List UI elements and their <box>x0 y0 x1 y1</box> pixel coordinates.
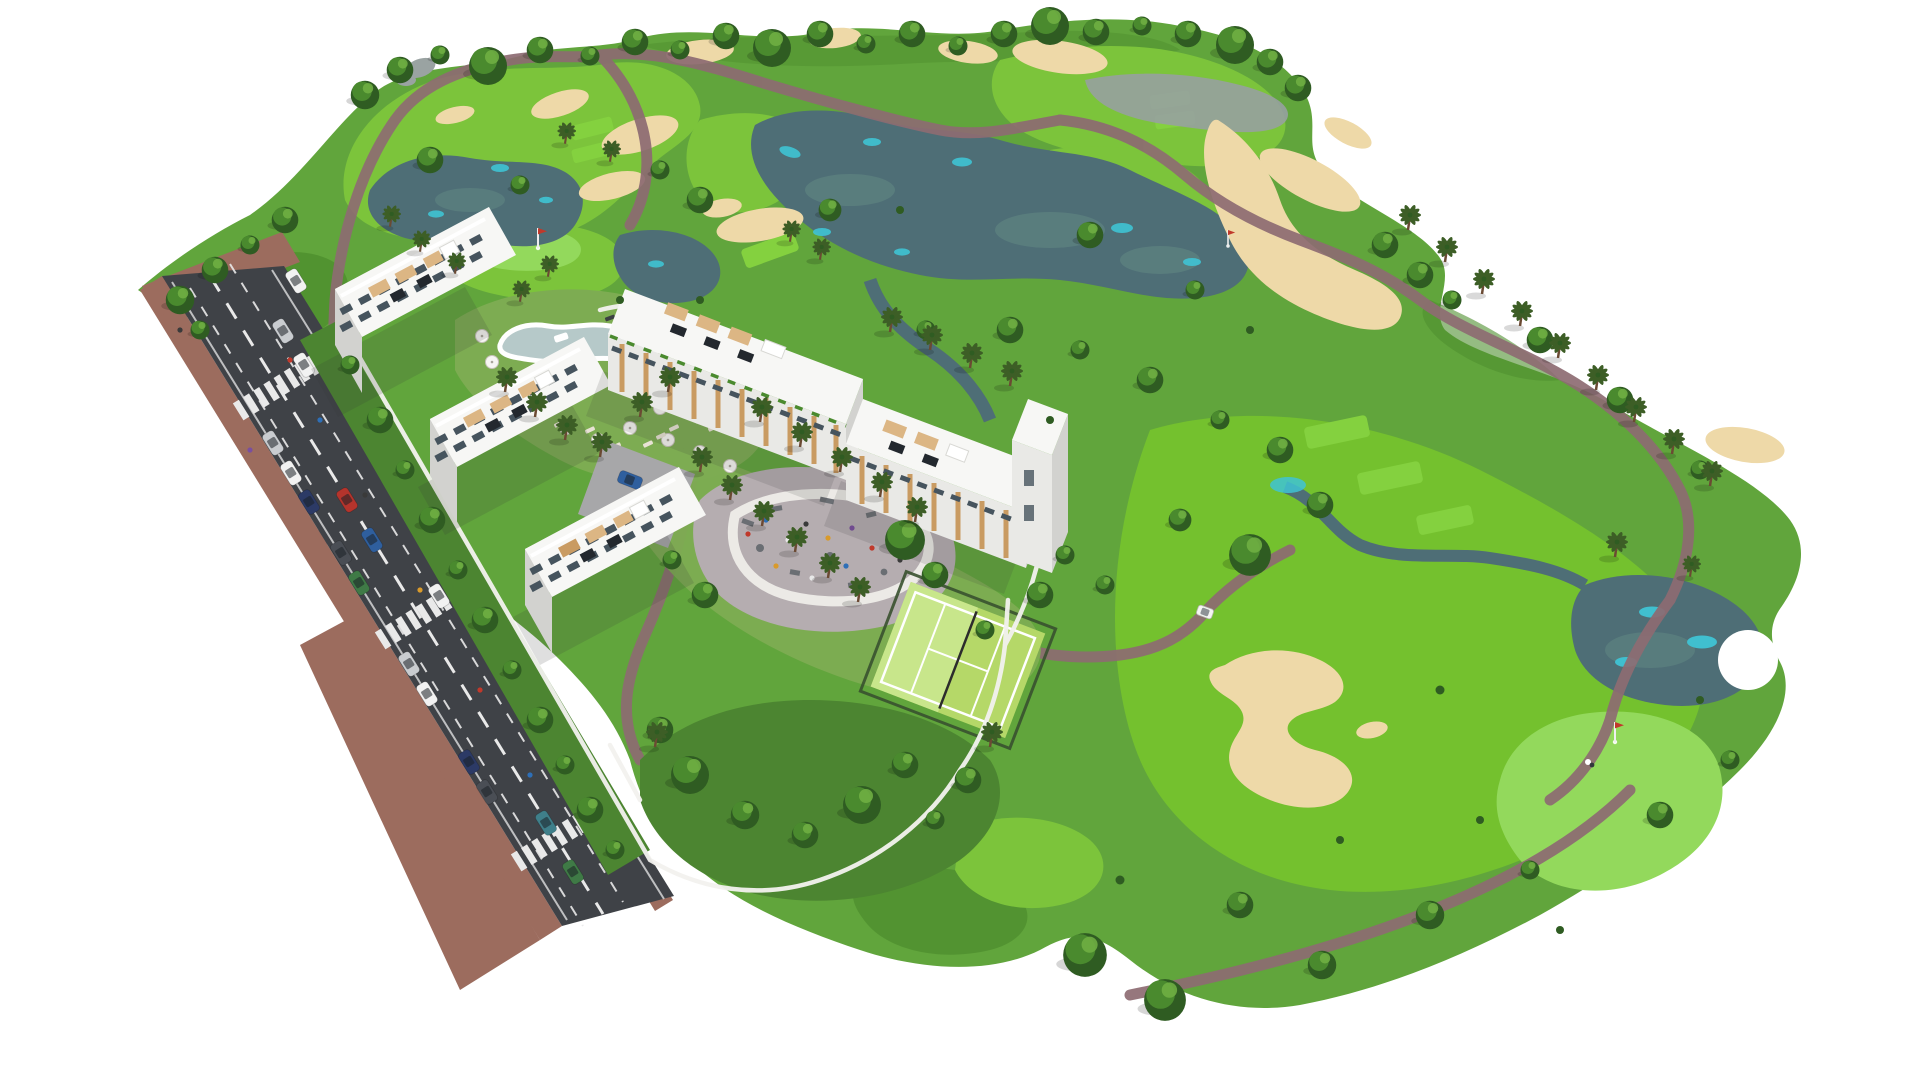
aerial-render-svg: Aerial 3D render of a golf-resort apartm… <box>0 0 1920 1080</box>
tower-window <box>1024 470 1034 486</box>
tower-window <box>1024 505 1034 521</box>
render-canvas: Aerial 3D render of a golf-resort apartm… <box>0 0 1920 1080</box>
mini-pond <box>1270 477 1306 493</box>
corner-tower <box>1012 399 1068 573</box>
white-notch-right <box>1718 630 1778 690</box>
